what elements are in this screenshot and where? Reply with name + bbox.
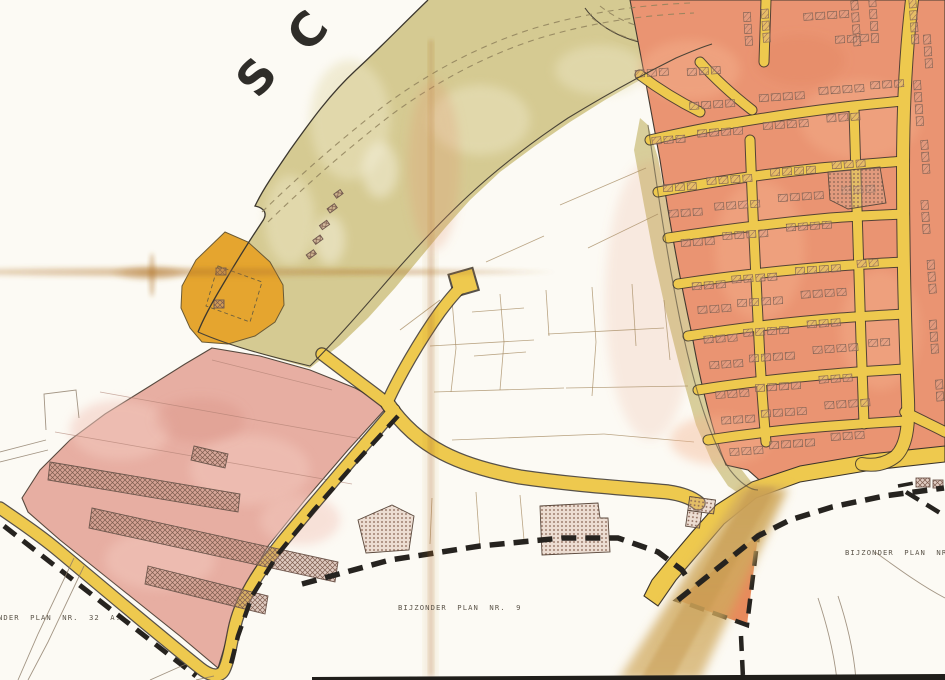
building-footprint: [676, 135, 685, 143]
building-footprint: [699, 67, 708, 75]
building-footprint: [709, 129, 718, 137]
building-footprint: [716, 335, 725, 343]
building-footprint: [716, 391, 725, 399]
building-footprint: [783, 92, 792, 100]
building-footprint: [704, 281, 713, 289]
map-canvas: S C NDER PLAN NR. 32 A. BIJZONDER PLAN N…: [0, 0, 945, 680]
building-footprint: [799, 119, 808, 127]
building-footprint: [756, 274, 765, 282]
building-footprint: [734, 360, 743, 368]
building-footprint: [652, 137, 661, 145]
building-footprint: [831, 375, 840, 383]
building-footprint: [785, 352, 794, 360]
building-footprint: [705, 237, 714, 245]
building-footprint: [827, 114, 836, 122]
building-footprint: [749, 354, 758, 362]
building-footprint: [814, 192, 823, 200]
building-footprint: [721, 128, 730, 136]
scanned-zoning-map: S C NDER PLAN NR. 32 A. BIJZONDER PLAN N…: [0, 0, 945, 680]
building-footprint: [805, 439, 814, 447]
building-footprint: [763, 122, 772, 130]
building-footprint: [822, 221, 831, 229]
building-footprint: [743, 12, 751, 21]
building-footprint: [689, 102, 698, 110]
building-footprint: [819, 87, 828, 95]
building-footprint: [810, 222, 819, 230]
building-footprint: [785, 408, 794, 416]
building-footprint: [664, 136, 673, 144]
building-footprint: [719, 176, 728, 184]
building-footprint: [713, 100, 722, 108]
building-footprint: [831, 265, 840, 273]
building-footprint: [910, 23, 918, 32]
building-footprint: [839, 114, 848, 122]
building-footprint: [659, 68, 668, 76]
building-footprint: [755, 384, 764, 392]
building-footprint: [869, 9, 877, 18]
building-footprint: [745, 415, 754, 423]
building-footprint: [857, 260, 866, 268]
building-footprint: [722, 360, 731, 368]
building-footprint: [807, 320, 816, 328]
building-footprint: [793, 440, 802, 448]
building-footprint: [730, 448, 739, 456]
building-footprint: [909, 0, 917, 8]
building-footprint: [795, 92, 804, 100]
building-footprint: [767, 383, 776, 391]
building-footprint: [849, 400, 858, 408]
building-footprint: [716, 281, 725, 289]
building-footprint: [773, 297, 782, 305]
building-footprint: [852, 13, 860, 22]
building-footprint: [855, 84, 864, 92]
building-footprint: [806, 166, 815, 174]
building-footprint: [778, 194, 787, 202]
building-footprint: [693, 238, 702, 246]
building-footprint: [759, 230, 768, 238]
building-footprint: [744, 24, 752, 33]
building-footprint: [870, 21, 878, 30]
building-footprint: [804, 13, 813, 21]
building-footprint: [837, 344, 846, 352]
building-footprint: [790, 193, 799, 201]
building-footprint: [851, 1, 859, 10]
building-footprint: [827, 11, 836, 19]
building-footprint: [697, 130, 706, 138]
building-footprint: [802, 192, 811, 200]
building-footprint: [911, 35, 919, 44]
plan-label-right: BIJZONDER PLAN NR. V: [845, 548, 945, 557]
plan-label-32a: NDER PLAN NR. 32 A.: [0, 613, 121, 622]
building-footprint: [725, 100, 734, 108]
building-footprint: [801, 291, 810, 299]
building-footprint: [687, 68, 696, 76]
building-footprint: [880, 338, 889, 346]
building-footprint: [927, 260, 935, 269]
building-footprint: [843, 374, 852, 382]
building-footprint: [761, 354, 770, 362]
building-footprint: [791, 382, 800, 390]
building-footprint: [723, 232, 732, 240]
building-footprint: [743, 329, 752, 337]
building-footprint: [869, 259, 878, 267]
building-footprint: [715, 203, 724, 211]
building-footprint: [681, 239, 690, 247]
building-footprint: [731, 175, 740, 183]
building-footprint: [929, 284, 937, 293]
building-footprint: [693, 208, 702, 216]
building-footprint: [698, 306, 707, 314]
building-footprint: [837, 400, 846, 408]
building-footprint: [738, 201, 747, 209]
building-footprint: [704, 336, 713, 344]
building-footprint: [763, 33, 771, 42]
building-footprint: [749, 298, 758, 306]
building-footprint: [707, 177, 716, 185]
building-footprint: [775, 121, 784, 129]
building-footprint: [819, 376, 828, 384]
building-footprint: [910, 11, 918, 20]
building-footprint: [928, 272, 936, 281]
building-footprint: [825, 289, 834, 297]
building-footprint: [923, 224, 931, 233]
building-footprint: [710, 305, 719, 313]
building-footprint: [807, 266, 816, 274]
building-footprint: [914, 80, 922, 89]
building-footprint: [869, 0, 877, 7]
building-footprint: [797, 407, 806, 415]
building-footprint: [798, 223, 807, 231]
building-footprint: [853, 37, 861, 46]
building-footprint: [852, 25, 860, 34]
building-footprint: [761, 9, 769, 18]
building-footprint: [922, 152, 930, 161]
building-footprint: [787, 120, 796, 128]
building-footprint: [740, 389, 749, 397]
building-footprint: [710, 361, 719, 369]
building-footprint: [855, 431, 864, 439]
building-footprint: [930, 332, 938, 341]
building-footprint: [916, 116, 924, 125]
building-footprint: [728, 390, 737, 398]
building-footprint: [922, 212, 930, 221]
building-footprint: [669, 210, 678, 218]
building-footprint: [825, 401, 834, 409]
building-footprint: [769, 441, 778, 449]
building-footprint: [761, 297, 770, 305]
building-footprint: [894, 80, 903, 88]
building-footprint: [935, 380, 943, 389]
building-footprint: [819, 265, 828, 273]
building-footprint: [692, 282, 701, 290]
building-footprint: [770, 169, 779, 177]
building-footprint: [737, 299, 746, 307]
building-footprint: [929, 320, 937, 329]
building-footprint: [733, 416, 742, 424]
building-footprint: [782, 168, 791, 176]
building-footprint: [721, 417, 730, 425]
building-footprint: [839, 10, 848, 18]
building-footprint: [832, 161, 841, 169]
building-footprint: [743, 174, 752, 182]
building-footprint: [843, 432, 852, 440]
building-footprint: [786, 224, 795, 232]
building-footprint: [767, 327, 776, 335]
building-footprint: [831, 433, 840, 441]
building-footprint: [773, 409, 782, 417]
building-footprint: [924, 47, 932, 56]
building-footprint: [816, 12, 825, 20]
building-footprint: [914, 92, 922, 101]
building-footprint: [745, 36, 753, 45]
building-footprint: [744, 275, 753, 283]
building-footprint: [733, 127, 742, 135]
building-footprint: [663, 184, 672, 192]
building-footprint: [754, 446, 763, 454]
building-footprint: [923, 35, 931, 44]
building-footprint: [831, 319, 840, 327]
building-footprint: [936, 392, 944, 401]
building-footprint: [779, 382, 788, 390]
building-footprint: [870, 81, 879, 89]
building-footprint: [722, 304, 731, 312]
building-footprint: [825, 345, 834, 353]
building-footprint: [871, 33, 879, 42]
building-footprint: [915, 104, 923, 113]
building-footprint: [771, 93, 780, 101]
building-footprint: [861, 399, 870, 407]
building-footprint: [921, 200, 929, 209]
building-footprint: [835, 36, 844, 44]
building-footprint: [925, 59, 933, 68]
building-footprint: [813, 346, 822, 354]
building-footprint: [795, 267, 804, 275]
building-footprint: [779, 326, 788, 334]
building-footprint: [856, 160, 865, 168]
building-footprint: [761, 410, 770, 418]
plan-label-9: BIJZONDER PLAN NR. 9: [398, 603, 522, 612]
building-footprint: [773, 353, 782, 361]
building-footprint: [747, 230, 756, 238]
building-footprint: [837, 288, 846, 296]
building-footprint: [687, 182, 696, 190]
building-footprint: [675, 183, 684, 191]
building-footprint: [868, 339, 877, 347]
building-footprint: [727, 202, 736, 210]
building-footprint: [851, 113, 860, 121]
building-footprint: [742, 447, 751, 455]
building-footprint: [768, 273, 777, 281]
building-footprint: [843, 85, 852, 93]
building-footprint: [922, 164, 930, 173]
building-footprint: [819, 320, 828, 328]
building-footprint: [849, 344, 858, 352]
building-footprint: [759, 94, 768, 102]
building-footprint: [931, 344, 939, 353]
building-footprint: [701, 101, 710, 109]
building-footprint: [921, 140, 929, 149]
building-footprint: [755, 328, 764, 336]
building-footprint: [794, 167, 803, 175]
building-footprint: [728, 334, 737, 342]
building-footprint: [762, 21, 770, 30]
building-footprint: [831, 86, 840, 94]
building-footprint: [711, 66, 720, 74]
building-footprint: [750, 200, 759, 208]
building-footprint: [882, 81, 891, 89]
building-footprint: [844, 160, 853, 168]
building-footprint: [813, 290, 822, 298]
building-footprint: [681, 209, 690, 217]
building-footprint: [781, 440, 790, 448]
building-footprint: [735, 231, 744, 239]
building-footprint: [732, 276, 741, 284]
